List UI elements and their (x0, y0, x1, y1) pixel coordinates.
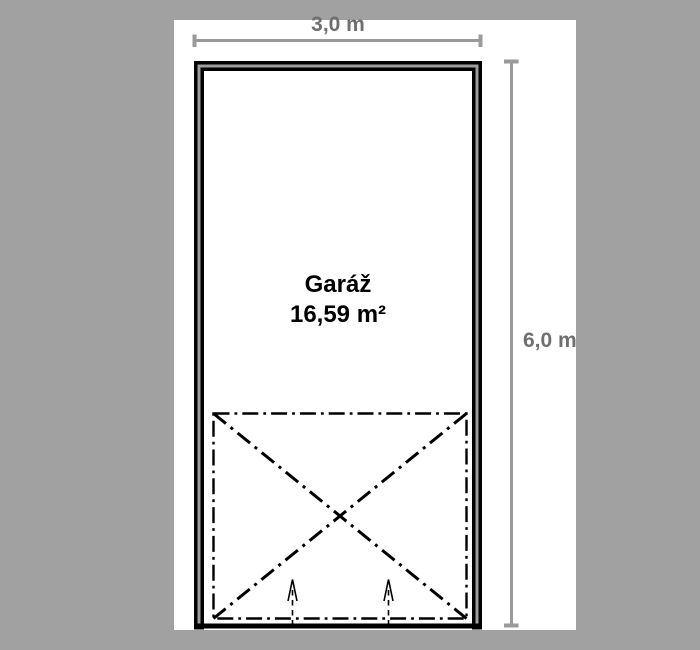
room-area: 16,59 m² (194, 300, 482, 330)
room-name: Garáž (194, 270, 482, 300)
width-dimension-label: 3,0 m (194, 14, 482, 35)
height-dimension-label: 6,0 m (523, 330, 577, 351)
garage-door-diagonal-2 (214, 414, 467, 619)
wall-outline (199, 66, 477, 630)
floorplan-canvas: 3,0 m 6,0 m Garáž 16,59 m² (0, 0, 700, 650)
garage-door-symbol (214, 414, 467, 619)
wall-core (199, 66, 477, 628)
room-label: Garáž 16,59 m² (194, 270, 482, 329)
